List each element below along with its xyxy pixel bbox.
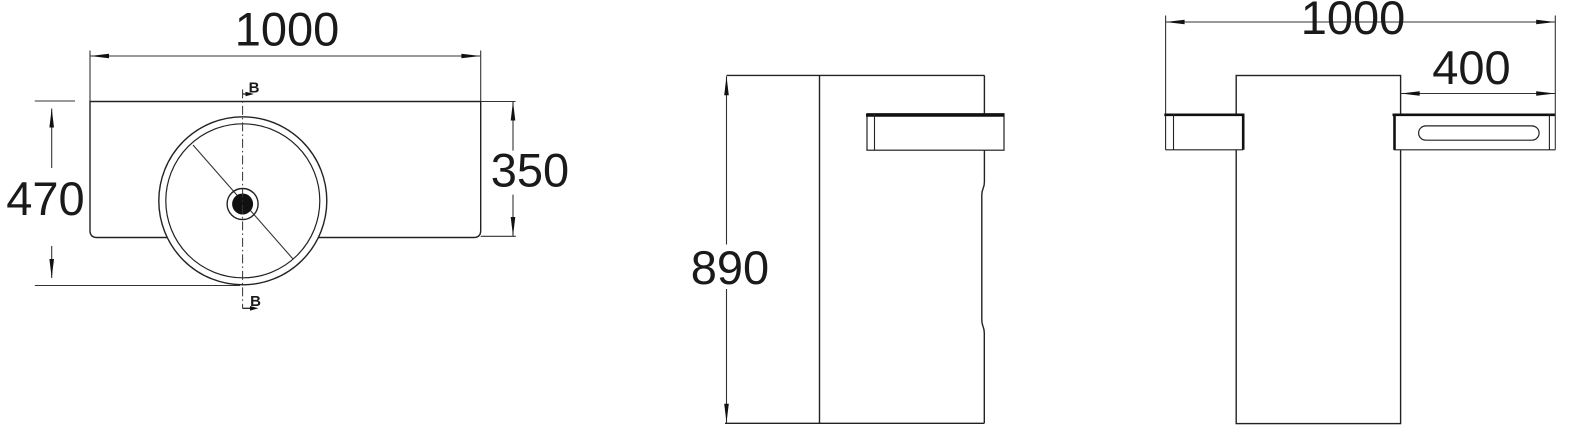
svg-text:470: 470 xyxy=(6,172,84,225)
svg-text:350: 350 xyxy=(491,144,569,197)
svg-text:890: 890 xyxy=(691,241,769,294)
svg-text:1000: 1000 xyxy=(1301,0,1406,44)
svg-text:1000: 1000 xyxy=(235,3,340,56)
svg-text:B: B xyxy=(250,293,261,310)
svg-text:B: B xyxy=(249,80,260,97)
svg-text:400: 400 xyxy=(1432,41,1510,94)
